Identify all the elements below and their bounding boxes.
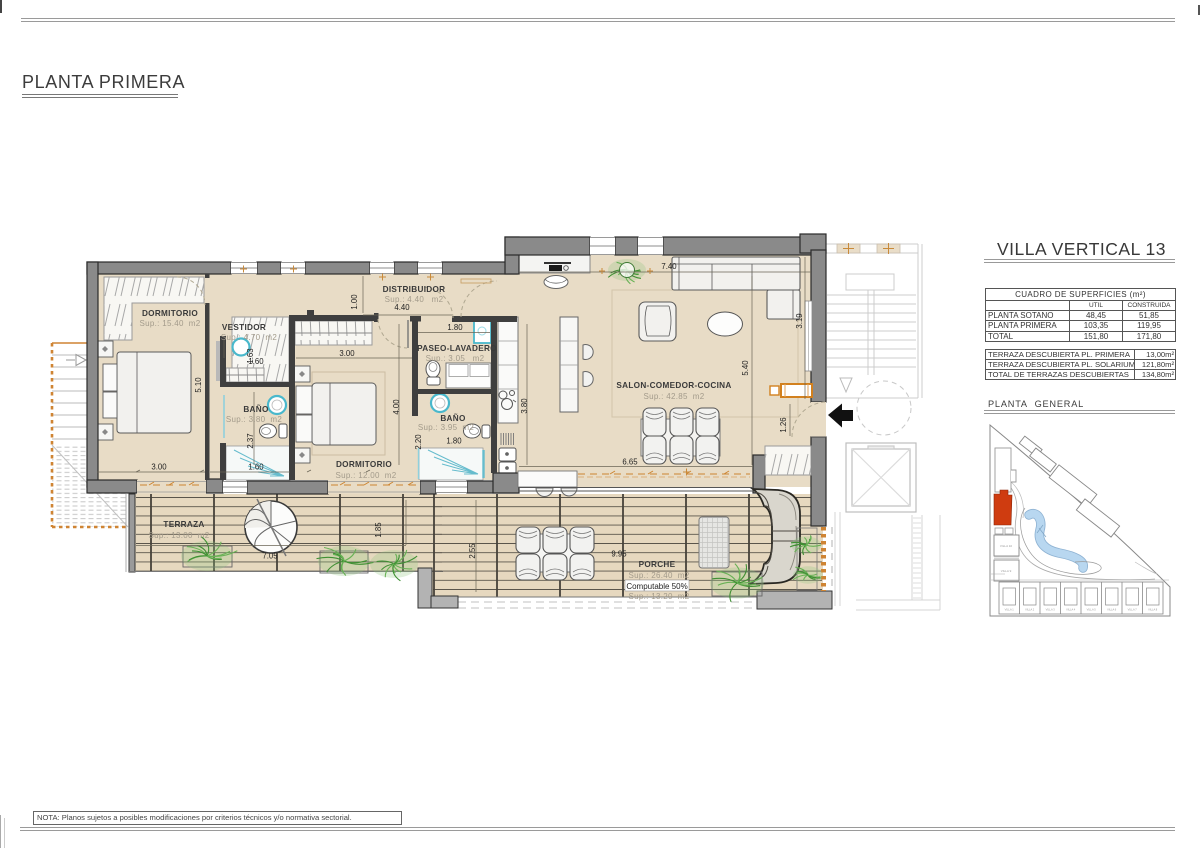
svg-text:4.40: 4.40 — [394, 303, 410, 312]
svg-text:Sup.: 26.40 m2: Sup.: 26.40 m2 — [629, 571, 690, 580]
svg-text:TERRAZA: TERRAZA — [163, 520, 204, 529]
svg-text:2.55: 2.55 — [468, 543, 477, 559]
svg-text:DORMITORIO: DORMITORIO — [142, 309, 198, 318]
svg-text:BAÑO: BAÑO — [243, 404, 269, 414]
svg-text:7.05: 7.05 — [262, 552, 278, 561]
svg-text:4.00: 4.00 — [392, 399, 401, 415]
svg-text:PORCHE: PORCHE — [639, 560, 676, 569]
svg-text:VILLA 4: VILLA 4 — [1066, 608, 1076, 612]
svg-text:VILLA 5: VILLA 5 — [1087, 608, 1097, 612]
svg-text:DORMITORIO: DORMITORIO — [336, 460, 392, 469]
svg-text:5.10: 5.10 — [194, 377, 203, 393]
svg-text:DISTRIBUIDOR: DISTRIBUIDOR — [383, 285, 446, 294]
svg-text:3.19: 3.19 — [795, 313, 804, 328]
svg-text:6.65: 6.65 — [622, 458, 638, 467]
svg-text:Sup.: 3.80 m2: Sup.: 3.80 m2 — [226, 415, 282, 424]
svg-text:Sup.: 12.00 m2: Sup.: 12.00 m2 — [336, 471, 397, 480]
svg-text:Sup.: 3.05 m2: Sup.: 3.05 m2 — [426, 354, 485, 363]
svg-text:Sup.: 42.85 m2: Sup.: 42.85 m2 — [644, 392, 705, 401]
svg-text:VILLA 2: VILLA 2 — [1025, 608, 1035, 612]
svg-text:3.00: 3.00 — [151, 463, 167, 472]
svg-text:3.00: 3.00 — [339, 349, 355, 358]
svg-text:1.80: 1.80 — [447, 323, 463, 332]
svg-text:VILLA 8: VILLA 8 — [1148, 608, 1158, 612]
svg-text:Sup.: 3.95 m2: Sup.: 3.95 m2 — [418, 423, 474, 432]
svg-text:2.20: 2.20 — [414, 434, 423, 450]
svg-text:3.80: 3.80 — [520, 398, 529, 414]
svg-text:VILLA 3: VILLA 3 — [1046, 608, 1056, 612]
svg-text:PASEO-LAVADERO: PASEO-LAVADERO — [417, 344, 497, 353]
svg-text:7.40: 7.40 — [661, 262, 677, 271]
svg-text:VILLA 6: VILLA 6 — [1107, 608, 1117, 612]
svg-text:1.60: 1.60 — [248, 357, 264, 366]
svg-text:VILLA 1: VILLA 1 — [1005, 608, 1015, 612]
svg-text:SALON-COMEDOR-COCINA: SALON-COMEDOR-COCINA — [616, 381, 731, 390]
svg-text:2.37: 2.37 — [246, 433, 255, 448]
svg-text:BAÑO: BAÑO — [440, 413, 466, 423]
svg-text:Sup.: 13.20 m2: Sup.: 13.20 m2 — [629, 592, 690, 601]
svg-text:5.40: 5.40 — [741, 360, 750, 376]
svg-text:Sup.: 15.40 m2: Sup.: 15.40 m2 — [140, 319, 201, 328]
svg-text:1.26: 1.26 — [779, 417, 788, 432]
svg-text:VILLA 9: VILLA 9 — [1001, 569, 1012, 573]
svg-text:Sup.: 13.00 m2: Sup.: 13.00 m2 — [149, 531, 210, 540]
svg-text:VILLA 7: VILLA 7 — [1128, 608, 1138, 612]
svg-text:VESTIDOR: VESTIDOR — [222, 323, 266, 332]
svg-text:VILLA 10: VILLA 10 — [1000, 544, 1013, 548]
svg-text:Sup.: 4.70 m2: Sup.: 4.70 m2 — [221, 333, 277, 342]
svg-text:1.60: 1.60 — [248, 463, 264, 472]
svg-text:1.00: 1.00 — [350, 294, 359, 310]
svg-text:1.85: 1.85 — [374, 522, 383, 538]
svg-text:Computable 50%: Computable 50% — [626, 582, 687, 591]
svg-text:1.80: 1.80 — [446, 437, 462, 446]
svg-text:9.95: 9.95 — [611, 550, 627, 559]
